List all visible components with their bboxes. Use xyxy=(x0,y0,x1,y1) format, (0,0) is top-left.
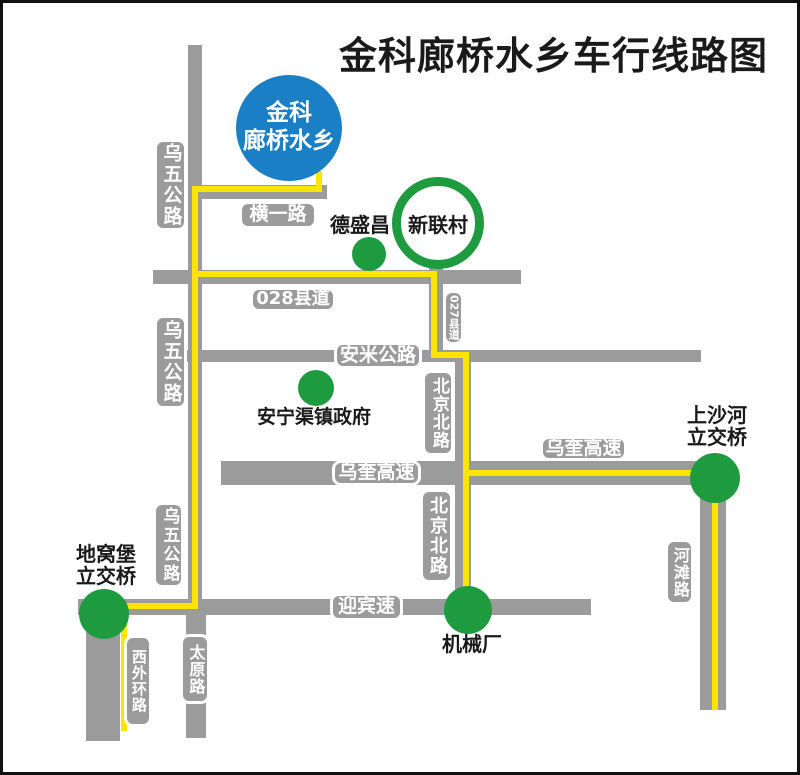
anningqu-label: 安宁渠镇政府 xyxy=(255,407,373,428)
shangshahe-label-line2: 立交桥 xyxy=(677,426,757,448)
road-label-x028: 028县道 xyxy=(250,287,336,312)
road-label-beijing-north-upper: 北京北路 xyxy=(422,370,454,456)
diwopu-label: 地窝堡 立交桥 xyxy=(66,543,146,588)
road-label-yingbin: 迎宾速 xyxy=(330,593,403,621)
jixiechang-label: 机械厂 xyxy=(439,633,505,655)
route-segment-hengyi xyxy=(192,186,322,192)
jinke-langqiao-landmark: 金科 廊桥水乡 xyxy=(236,75,342,181)
diwopu-label-line2: 立交桥 xyxy=(66,565,146,587)
map-title: 金科廊桥水乡车行线路图 xyxy=(339,25,799,80)
road-label-wukui-right: 乌奎高速 xyxy=(540,436,627,461)
route-segment-x027-south xyxy=(431,271,437,356)
road-label-x027: 027县道 xyxy=(443,290,464,345)
landmark-name-line1: 金科 xyxy=(266,100,312,128)
diwopu-interchange-dot xyxy=(79,589,129,639)
road-label-xiwaihuan: 西外环路 xyxy=(124,635,152,727)
route-segment-wukui-east xyxy=(463,470,715,476)
route-segment-hetan-south xyxy=(712,473,718,710)
route-map-canvas: 金科廊桥水乡车行线路图 乌五公路 乌五公路 乌五公路 横一路 028县道 027… xyxy=(0,0,800,775)
diwopu-label-line1: 地窝堡 xyxy=(66,543,146,565)
road-label-wukui-left: 乌奎高速 xyxy=(332,460,421,486)
shangshahe-label: 上沙河 立交桥 xyxy=(677,404,757,449)
road-label-hetan: 河滩路 xyxy=(665,539,694,605)
xinlian-village-label: 新联村 xyxy=(408,209,468,238)
landmark-name-line2: 廊桥水乡 xyxy=(243,128,335,156)
anningqu-poi-dot xyxy=(298,370,334,406)
road-label-wuwu-top: 乌五公路 xyxy=(154,139,187,231)
route-segment-beijing-north-south xyxy=(463,355,469,608)
road-label-wuwu-middle: 乌五公路 xyxy=(154,315,187,409)
road-label-taiyuan: 太原路 xyxy=(180,634,210,704)
route-segment-x028-east xyxy=(195,271,437,277)
desheng-poi-dot xyxy=(352,237,386,271)
desheng-label: 德盛昌 xyxy=(328,214,392,236)
road-label-anmi: 安米公路 xyxy=(334,342,422,369)
route-segment-wuwu-south xyxy=(192,186,198,606)
shangshahe-interchange-dot xyxy=(690,453,740,503)
road-label-hengyi: 横一路 xyxy=(239,201,317,229)
road-label-beijing-north-lower: 北京北路 xyxy=(420,489,453,583)
road-label-wuwu-bottom: 乌五公路 xyxy=(153,502,184,588)
shangshahe-label-line1: 上沙河 xyxy=(677,404,757,426)
jixiechang-poi-dot xyxy=(444,586,492,634)
xinlian-village-ring: 新联村 xyxy=(392,177,484,269)
